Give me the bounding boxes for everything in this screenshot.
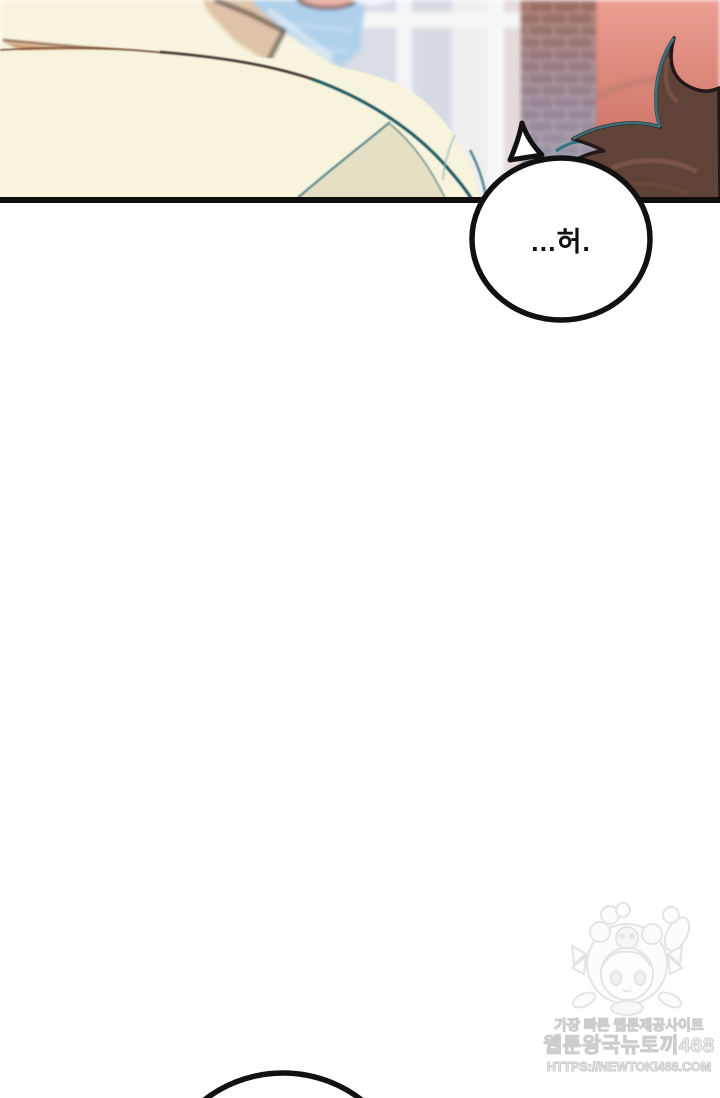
mascot-hood-ear — [590, 922, 610, 942]
watermark-tagline: 가장 빠른 웹툰제공사이트 — [538, 1018, 720, 1034]
newtoki-mascot-icon — [552, 902, 702, 1020]
mascot-wing — [657, 989, 684, 1010]
speech-bubble-tail — [510, 123, 542, 160]
window-frame-horizontal — [355, 12, 520, 28]
next-speech-bubble-partial — [0, 1040, 460, 1098]
webtoon-reader-page: ...허. 가장 빠른 웹툰제 — [0, 0, 720, 1098]
mascot-wing — [571, 989, 598, 1010]
speech-bubble-text: ...허. — [472, 216, 650, 262]
watermark-url: HTTPS://NEWTOKI468.COM — [538, 1060, 720, 1074]
watermark-site-name: 웹툰왕국뉴토끼468 — [538, 1035, 720, 1058]
mascot-eye — [611, 971, 621, 985]
mascot-eye — [635, 971, 645, 985]
mascot-hood-ear — [642, 924, 662, 944]
site-watermark: 가장 빠른 웹툰제공사이트 웹툰왕국뉴토끼468 HTTPS://NEWTOKI… — [538, 1018, 720, 1074]
mascot-hood-bear-face — [616, 927, 638, 949]
